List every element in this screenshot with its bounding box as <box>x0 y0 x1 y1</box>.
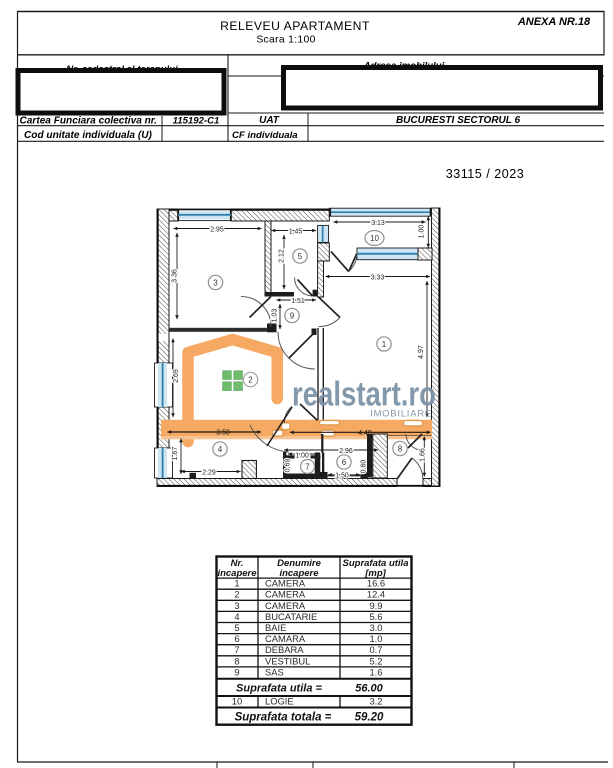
svg-text:UAT: UAT <box>259 115 280 126</box>
svg-text:5.6: 5.6 <box>369 611 382 622</box>
svg-text:Scara 1:100: Scara 1:100 <box>256 35 315 46</box>
svg-text:Cod unitate individuala (U): Cod unitate individuala (U) <box>24 130 152 141</box>
svg-text:3.2: 3.2 <box>369 695 382 706</box>
svg-text:3.50: 3.50 <box>216 430 230 437</box>
svg-text:0.7: 0.7 <box>369 644 382 655</box>
svg-text:Suprafata utila =: Suprafata utila = <box>236 683 322 695</box>
svg-text:BAIE: BAIE <box>265 622 286 633</box>
svg-text:1.00: 1.00 <box>419 225 426 239</box>
svg-text:CAMERA: CAMERA <box>265 600 306 611</box>
svg-text:1.03: 1.03 <box>272 309 279 323</box>
svg-text:LOGIE: LOGIE <box>265 695 294 706</box>
svg-text:IMOBILIARE: IMOBILIARE <box>370 409 432 420</box>
svg-text:2: 2 <box>234 589 239 600</box>
svg-text:5: 5 <box>298 252 303 261</box>
svg-text:16.6: 16.6 <box>367 578 385 589</box>
svg-text:SAS: SAS <box>265 667 284 678</box>
svg-text:7: 7 <box>234 644 239 655</box>
svg-text:56.00: 56.00 <box>355 683 383 695</box>
svg-text:4: 4 <box>218 445 223 454</box>
svg-text:2.95: 2.95 <box>210 226 224 233</box>
svg-text:ANEXA NR.18: ANEXA NR.18 <box>517 16 591 28</box>
svg-text:115192-C1: 115192-C1 <box>173 116 220 127</box>
svg-text:6: 6 <box>342 458 347 467</box>
svg-text:5.2: 5.2 <box>369 655 382 666</box>
svg-text:CAMARA: CAMARA <box>265 633 306 644</box>
svg-text:2.12: 2.12 <box>279 249 286 263</box>
svg-text:3: 3 <box>213 279 218 288</box>
svg-text:9.9: 9.9 <box>369 600 382 611</box>
svg-text:3.33: 3.33 <box>371 274 385 281</box>
svg-text:8: 8 <box>398 445 403 454</box>
svg-text:9: 9 <box>234 667 239 678</box>
svg-text:CF individuala: CF individuala <box>232 130 298 141</box>
svg-text:BUCATARIE: BUCATARIE <box>265 611 317 622</box>
svg-text:RELEVEU APARTAMENT: RELEVEU APARTAMENT <box>220 19 370 33</box>
svg-text:1.6: 1.6 <box>369 667 382 678</box>
svg-text:1.0: 1.0 <box>369 633 382 644</box>
svg-text:5: 5 <box>234 622 239 633</box>
svg-text:CAMERA: CAMERA <box>265 589 306 600</box>
svg-text:3: 3 <box>234 600 239 611</box>
svg-text:0.60: 0.60 <box>361 460 368 474</box>
svg-text:10: 10 <box>232 695 242 706</box>
svg-text:4: 4 <box>234 611 239 622</box>
svg-text:4.97: 4.97 <box>418 345 425 359</box>
svg-text:1.66: 1.66 <box>420 448 427 462</box>
svg-text:1.45: 1.45 <box>289 228 303 235</box>
svg-text:1: 1 <box>382 340 387 349</box>
svg-text:2.96: 2.96 <box>339 448 353 455</box>
svg-text:10: 10 <box>370 234 379 243</box>
svg-text:1.50: 1.50 <box>335 473 349 480</box>
svg-text:3.36: 3.36 <box>172 269 179 283</box>
svg-text:3.13: 3.13 <box>371 220 385 227</box>
svg-text:59.20: 59.20 <box>355 711 384 723</box>
svg-text:1.67: 1.67 <box>172 447 179 461</box>
svg-text:DEBARA: DEBARA <box>265 644 304 655</box>
svg-text:VESTIBUL: VESTIBUL <box>265 655 310 666</box>
svg-text:1.51: 1.51 <box>291 298 305 305</box>
svg-text:1.00: 1.00 <box>295 453 309 460</box>
svg-text:0.69: 0.69 <box>285 459 292 473</box>
svg-text:3.0: 3.0 <box>369 622 382 633</box>
svg-text:Cartea Funciara colectiva nr.: Cartea Funciara colectiva nr. <box>20 116 157 127</box>
svg-text:BUCURESTI SECTORUL 6: BUCURESTI SECTORUL 6 <box>396 115 521 126</box>
svg-text:2.29: 2.29 <box>202 469 216 476</box>
svg-text:6: 6 <box>234 633 239 644</box>
svg-text:Suprafata totala =: Suprafata totala = <box>235 711 332 723</box>
svg-text:CAMERA: CAMERA <box>265 578 306 589</box>
svg-text:4.48: 4.48 <box>358 430 372 437</box>
svg-text:12.4: 12.4 <box>367 589 385 600</box>
svg-text:33115 / 2023: 33115 / 2023 <box>446 167 525 181</box>
svg-text:8: 8 <box>234 655 239 666</box>
svg-text:2.69: 2.69 <box>173 369 180 383</box>
svg-text:1: 1 <box>234 578 239 589</box>
svg-text:7: 7 <box>305 463 310 472</box>
svg-text:2: 2 <box>248 376 253 385</box>
svg-text:9: 9 <box>290 312 295 321</box>
